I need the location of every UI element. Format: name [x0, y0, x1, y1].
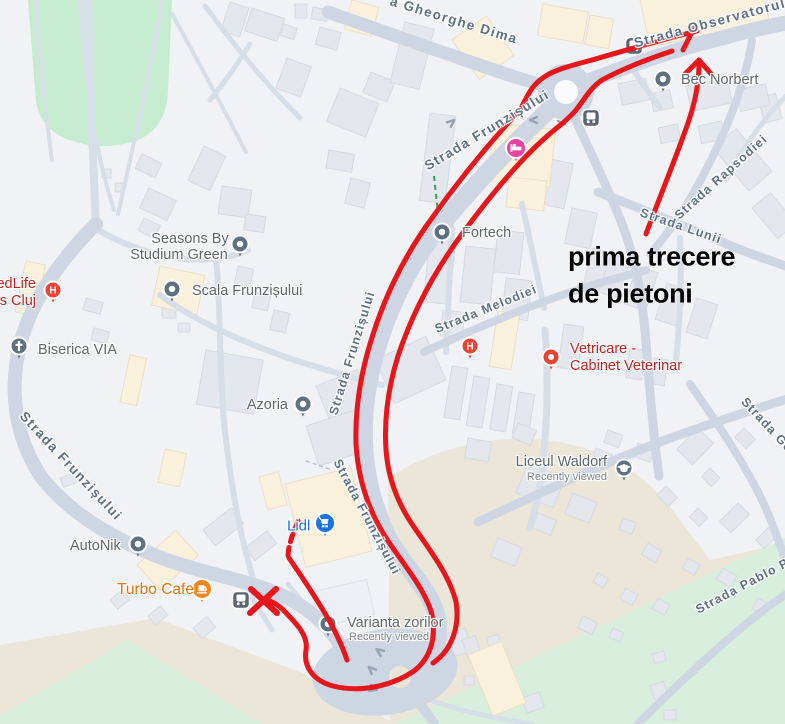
bus-stop-icon[interactable]	[233, 592, 250, 609]
poi-label-bec-norbert[interactable]: Bec Norbert	[681, 72, 758, 88]
poi-label-seasons-line2[interactable]: Studium Green	[130, 247, 228, 263]
poi-label-varianta-sub: Recently viewed	[349, 631, 429, 643]
poi-label-turbo-cafe[interactable]: Turbo Cafe	[117, 581, 194, 599]
poi-label-waldorf-sub: Recently viewed	[527, 471, 607, 483]
bus-stop-icon[interactable]	[583, 110, 600, 127]
poi-label-vetricare-line1[interactable]: Vetricare -	[570, 341, 636, 357]
poi-label-scala[interactable]: Scala Frunzișului	[192, 283, 302, 299]
poi-label-vetricare-line2[interactable]: Cabinet Veterinar	[570, 358, 682, 374]
medlife-hospital-pin[interactable]: H	[45, 282, 62, 303]
poi-label-azoria[interactable]: Azoria	[247, 397, 288, 413]
map-canvas[interactable]: H H	[0, 0, 785, 724]
poi-label-medlife-line2[interactable]: s Cluj	[0, 293, 36, 309]
poi-label-autonik[interactable]: AutoNik	[70, 538, 121, 554]
hospital-h-icon: H	[466, 342, 473, 353]
poi-label-varianta[interactable]: Varianta zorilor	[347, 615, 443, 631]
melodiei-hospital-pin[interactable]: H	[462, 338, 479, 359]
bec-norbert-pin[interactable]	[655, 71, 672, 92]
turbo-cafe-pin[interactable]	[192, 579, 212, 602]
poi-label-waldorf[interactable]: Liceul Waldorf	[516, 454, 607, 470]
annotation-text-line2: de pietoni	[568, 279, 693, 310]
poi-label-biserica[interactable]: Biserica VIA	[38, 342, 117, 358]
hospital-h-icon: H	[49, 286, 56, 297]
poi-label-medlife-line1[interactable]: edLife	[0, 276, 36, 292]
annotation-text-line1: prima trecere	[568, 242, 735, 273]
poi-label-seasons-line1[interactable]: Seasons By	[151, 231, 228, 247]
poi-label-lidl[interactable]: Lidl	[287, 518, 310, 535]
azoria-pin[interactable]	[295, 396, 312, 417]
poi-label-fortech[interactable]: Fortech	[462, 225, 511, 241]
